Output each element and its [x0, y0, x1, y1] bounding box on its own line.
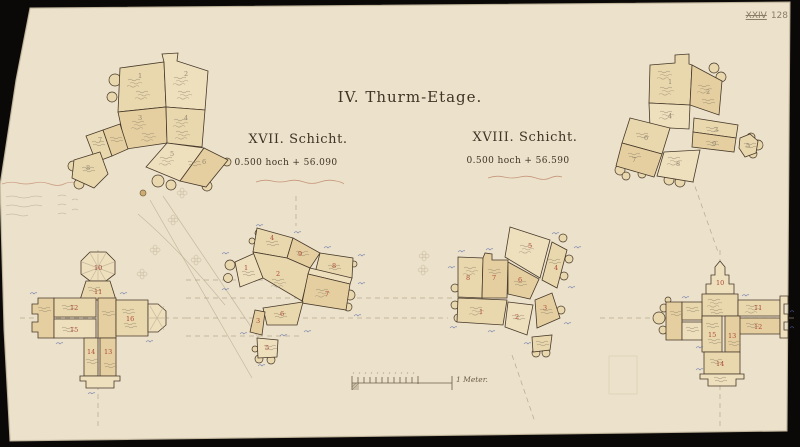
stone	[532, 335, 552, 352]
section-elevation-xvii: 0.500 hoch + 56.090	[226, 159, 346, 169]
stone-number: 12	[70, 304, 78, 312]
stone	[780, 296, 788, 338]
stone-number: 8	[332, 262, 336, 270]
plan-cluster-top-left: 1 2 3 4 5 6 7 8	[58, 50, 233, 200]
plan-cluster-mid-left: 1 2 3 4 5 6 7 8 9	[212, 224, 390, 370]
stone	[700, 374, 744, 386]
stone-number: 7	[632, 156, 636, 164]
stones	[666, 261, 788, 386]
stone	[166, 107, 205, 147]
stone-number: 6	[280, 310, 284, 318]
stone-number: 16	[126, 315, 134, 323]
stone-number: 8	[466, 274, 470, 282]
pinnacle-stone	[706, 261, 734, 294]
scale-bar	[352, 372, 452, 390]
stone	[100, 338, 116, 376]
stone-number: 7	[492, 274, 496, 282]
section-heading-xviii: XVIII. Schicht.	[465, 131, 585, 145]
stone-number: 8	[676, 160, 680, 168]
stone-number: 1	[668, 78, 672, 86]
stone-number: 1	[138, 72, 142, 80]
plan-cluster-mid-right: 1 2 3 4 5 6 7 8	[424, 224, 596, 372]
stones	[72, 53, 228, 188]
stone-number: 3	[256, 317, 260, 325]
stone	[162, 53, 208, 110]
stone-number: 4	[184, 114, 188, 122]
stone-number: 1	[244, 264, 248, 272]
stone	[32, 298, 54, 338]
stone-number: 5	[528, 242, 532, 250]
stone-number: 13	[104, 348, 112, 356]
stone-number: 6	[644, 134, 648, 142]
scanned-drawing-sheet: 1 2 3 4 5 6 7 8	[0, 0, 800, 447]
stone-number: 3	[138, 114, 142, 122]
scale-bar-label: 1 Meter.	[456, 376, 516, 384]
stone-number: 15	[708, 331, 716, 339]
stone-number: 3	[543, 304, 547, 312]
archive-note: XXIV128	[716, 12, 788, 22]
stone-number: 3	[714, 126, 718, 134]
stone-number: 14	[716, 360, 724, 368]
stone	[666, 302, 682, 340]
section-elevation-xviii: 0.500 hoch + 56.590	[458, 157, 578, 167]
stone-number: 2	[706, 88, 710, 96]
stone-number: 9	[298, 250, 302, 258]
stone-number: 12	[754, 323, 762, 331]
archive-number: 128	[771, 11, 788, 21]
plan-cluster-cross-left: 10 11 12 13 14 15 16	[28, 248, 184, 394]
stone-number: 13	[728, 332, 736, 340]
stone	[80, 376, 120, 388]
stone-number: 4	[270, 234, 274, 242]
stone-number: 8	[86, 164, 90, 172]
stone	[458, 257, 483, 298]
stone-number: 9	[712, 140, 716, 148]
stone-number: 7	[98, 136, 102, 144]
stone-number: 4	[554, 264, 558, 272]
stone-number: 7	[325, 290, 329, 298]
stone-number: 1	[479, 308, 483, 316]
stone-number: 6	[518, 276, 522, 284]
stone-number: 10	[94, 264, 102, 272]
stone-number: 11	[754, 304, 762, 312]
plan-cluster-cross-right: 10 11 12 13 14 15	[648, 256, 794, 390]
sheet-title: IV. Thurm-Etage.	[330, 89, 490, 106]
stone-number: 5	[170, 150, 174, 158]
stone-number: 2	[515, 313, 519, 321]
stones	[616, 54, 758, 182]
stone	[98, 298, 116, 338]
stones	[457, 227, 567, 352]
stone-number: 4	[668, 112, 672, 120]
stones	[235, 228, 353, 358]
stone	[84, 338, 98, 376]
red-ink-annotations	[256, 176, 562, 184]
section-heading-xvii: XVII. Schicht.	[238, 133, 358, 147]
stone-number: 2	[276, 270, 280, 278]
archive-series: XXIV	[746, 11, 767, 21]
stone-number: 5	[265, 344, 269, 352]
stone-number: 11	[94, 288, 102, 296]
stone-number: 2	[184, 70, 188, 78]
stone-number: 5	[746, 142, 750, 150]
stone-number: 14	[87, 348, 95, 356]
stone-number: 10	[716, 279, 724, 287]
stone-number: 15	[70, 326, 78, 334]
stone	[118, 62, 166, 112]
stones	[32, 252, 166, 388]
plan-cluster-top-right: 1 2 3 4 5 6 7 8 9	[612, 50, 790, 208]
stone-number: 6	[202, 158, 206, 166]
